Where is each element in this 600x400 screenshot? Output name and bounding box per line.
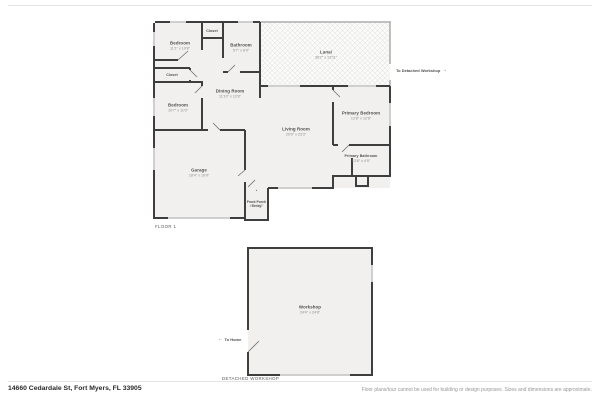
room-dims: 13'8" x 4'9" (345, 159, 378, 164)
room-label-bathroom: Bathroom 5'7" x 8'9" (230, 43, 252, 54)
floor1-plan: Bedroom 11'1" x 10'8" Closet Bathroom 5'… (150, 18, 460, 233)
to-home-link[interactable]: ← To Home (218, 337, 241, 342)
room-dims: 5'7" x 8'9" (230, 49, 252, 54)
room-label-primary-bathroom: Primary Bathroom 13'8" x 4'9" (345, 154, 378, 164)
room-name: Workshop (299, 305, 321, 311)
exit-left-icon: ← (218, 337, 223, 342)
room-label-lanai: Lanai 38'2" x 13'11" (315, 50, 337, 61)
room-dims: 20'9" x 23'3" (282, 133, 310, 138)
floor-fill (155, 23, 390, 220)
room-label-bedroom-2: Bedroom 10'7" x 11'0" (168, 103, 188, 114)
room-name: Primary Bedroom (342, 111, 380, 117)
to-detached-workshop-link[interactable]: To Detached Workshop → (396, 68, 447, 73)
room-dims: 4'6" x 6'9" (245, 205, 268, 209)
room-name: Bedroom (168, 103, 188, 109)
room-name: Bedroom (170, 41, 190, 47)
room-label-bedroom-1: Bedroom 11'1" x 10'8" (170, 41, 190, 52)
room-name: Closet (166, 73, 178, 77)
room-label-garage: Garage 18'4" x 19'9" (189, 168, 209, 179)
room-dims: 10'7" x 11'0" (168, 109, 188, 114)
room-name: Closet (206, 29, 218, 33)
room-label-primary-bedroom: Primary Bedroom 13'8" x 12'8" (342, 111, 380, 122)
floorplan-page: Bedroom 11'1" x 10'8" Closet Bathroom 5'… (0, 0, 600, 400)
room-dims: 13'8" x 12'8" (342, 117, 380, 122)
room-dims: 11'1" x 10'8" (170, 47, 190, 52)
room-label-living-room: Living Room 20'9" x 23'3" (282, 127, 310, 138)
room-dims: 24'4" x 24'8" (299, 311, 321, 316)
room-dims: 18'4" x 19'9" (189, 174, 209, 179)
room-name: Primary Bathroom (345, 154, 378, 158)
to-detached-workshop-label: To Detached Workshop (396, 68, 440, 73)
room-label-closet-top: Closet (206, 29, 218, 33)
workshop-plan: Workshop 24'4" x 24'8" ← To Home DETACHE… (200, 240, 400, 388)
to-home-label: To Home (225, 337, 242, 342)
room-name: Garage (189, 168, 209, 174)
floor1-title: FLOOR 1 (155, 224, 176, 229)
property-address: 14660 Cedardale St, Fort Myers, FL 33905 (8, 385, 142, 392)
top-divider (8, 5, 592, 6)
disclaimer-text: Floor plans/tour cannot be used for buil… (362, 387, 592, 393)
exit-right-icon: → (442, 68, 447, 73)
room-dims: 38'2" x 13'11" (315, 56, 337, 61)
room-name: Bathroom (230, 43, 252, 49)
room-label-dining-room: Dining Room 11'10" x 12'8" (216, 89, 244, 100)
room-name: Dining Room (216, 89, 244, 95)
room-dims: 11'10" x 12'8" (216, 95, 244, 100)
floor1-walls-svg (150, 18, 460, 233)
bottom-divider (8, 381, 592, 382)
room-name: Living Room (282, 127, 310, 133)
room-label-front-porch: Front Porch 4'6" x 6'9" (245, 201, 268, 209)
room-name: Lanai (315, 50, 337, 56)
room-label-closet-left: Closet (166, 73, 178, 77)
entry-arrow-icon: ▴ (245, 189, 268, 193)
room-label-workshop: Workshop 24'4" x 24'8" (299, 305, 321, 316)
